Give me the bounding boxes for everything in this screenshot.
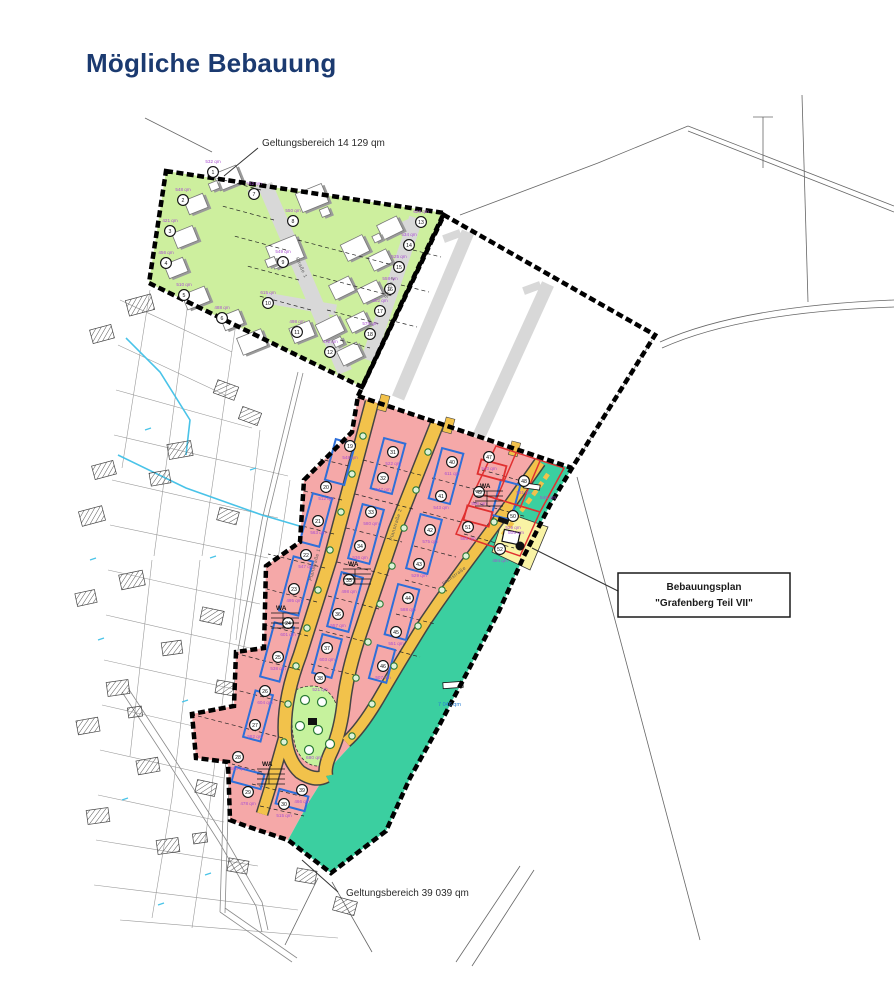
hatched-building	[156, 838, 180, 855]
hatched-building	[75, 590, 97, 607]
plot-area-label: 507 qm	[375, 675, 390, 680]
svg-text:19: 19	[347, 444, 353, 450]
plan-title-box: Bebauungsplan "Grafenberg Teil VII"	[532, 548, 790, 617]
playground-tree	[301, 696, 310, 705]
plot-area-label: 548 qm	[175, 187, 190, 192]
hatched-building	[78, 506, 105, 527]
plot-area-label: 551 qm	[388, 641, 403, 646]
hatched-building	[86, 808, 110, 825]
hatched-building	[333, 896, 358, 915]
svg-text:36: 36	[335, 612, 341, 618]
svg-text:8: 8	[292, 219, 295, 225]
bottom-area-label: Geltungsbereich 39 039 qm	[346, 888, 469, 899]
street-tree	[285, 701, 291, 707]
hatched-building	[125, 294, 154, 316]
street-tree	[415, 623, 421, 629]
stream	[126, 338, 190, 455]
svg-text:23: 23	[291, 587, 297, 593]
plot-area-label: 525 qm	[391, 254, 406, 259]
svg-text:2: 2	[182, 198, 185, 204]
plot-area-label: 582 qm	[247, 734, 262, 739]
plot-area-label: 548 qm	[342, 455, 357, 460]
street-tree	[425, 449, 431, 455]
plot-area-label: 472 qm	[322, 339, 337, 344]
svg-text:11: 11	[294, 330, 299, 336]
street-tree	[304, 625, 310, 631]
street-tree	[315, 587, 321, 593]
plot-area-label: 547 qm	[375, 487, 390, 492]
plot-area-label: 585 qm	[460, 536, 475, 541]
plot-area-label: 515 qm	[276, 813, 291, 818]
hatched-building	[200, 607, 224, 625]
plot-area-label: 566 qm	[471, 501, 486, 506]
plot-area-label: 495 qm	[286, 598, 301, 603]
plot-area-label: 604 qm	[257, 700, 272, 705]
plot-area-label: 456 qm	[158, 250, 173, 255]
hatched-building	[136, 757, 160, 775]
svg-text:21: 21	[315, 519, 321, 525]
plot-area-label: 529 qm	[411, 573, 426, 578]
hatched-building	[227, 858, 249, 874]
playground-symbol	[308, 718, 317, 725]
street-tree	[349, 733, 355, 739]
playground-tree	[296, 722, 305, 731]
plot-area-label: 498 qm	[289, 319, 304, 324]
plot-area-label: 603 qm	[319, 657, 334, 662]
hatched-building	[167, 441, 193, 460]
site-plan-map: 1532 qm2548 qm3421 qm4456 qm5510 qm6488 …	[0, 0, 894, 1000]
playground-tree	[314, 726, 323, 735]
svg-text:47: 47	[486, 455, 492, 461]
svg-text:26: 26	[262, 689, 268, 695]
street-tree	[349, 471, 355, 477]
svg-text:41: 41	[438, 494, 444, 500]
svg-text:34: 34	[357, 544, 363, 550]
plot-area-label: 588 qm	[400, 607, 415, 612]
svg-text:40: 40	[449, 460, 455, 466]
plot-area-label: 521 qm	[312, 687, 327, 692]
svg-text:6: 6	[221, 316, 224, 322]
plan-box-line2: "Grafenberg Teil VII"	[655, 598, 753, 609]
svg-text:15: 15	[396, 265, 402, 271]
svg-text:18: 18	[367, 332, 373, 338]
plot-area-label: 543 qm	[433, 505, 448, 510]
plot-area-label: 549 qm	[275, 249, 290, 254]
plot-area-label: 560 qm	[230, 766, 245, 771]
svg-text:WA: WA	[480, 483, 491, 490]
plot-area-label: 575 qm	[422, 539, 437, 544]
svg-text:39: 39	[299, 788, 305, 794]
svg-text:9: 9	[282, 260, 285, 266]
top-area-label: Geltungsbereich 14 129 qm	[262, 138, 385, 149]
hatched-building	[106, 680, 130, 697]
plot-area-label: 615 qm	[260, 290, 275, 295]
teal-plot-area-label: 548 qm	[540, 495, 556, 501]
annotation-top-area: Geltungsbereich 14 129 qm	[224, 138, 385, 176]
svg-text:5: 5	[183, 293, 186, 299]
plot-area-label: 536 qm	[352, 555, 367, 560]
street-tree	[413, 487, 419, 493]
street-tree	[439, 587, 445, 593]
street-tree	[327, 547, 333, 553]
street-tree	[338, 509, 344, 515]
plot-area-label: 611 qm	[445, 471, 460, 476]
svg-text:22: 22	[303, 553, 309, 559]
playground-tree	[318, 698, 327, 707]
svg-text:48: 48	[521, 479, 527, 485]
street-tree	[369, 701, 375, 707]
hatched-building	[192, 832, 207, 844]
svg-text:50: 50	[510, 514, 516, 520]
plot-area-label: 494 qm	[492, 558, 507, 563]
street-tree	[463, 553, 469, 559]
plot-area-label: 562 qm	[246, 181, 261, 186]
hatched-building	[92, 460, 117, 479]
street-tree	[365, 639, 371, 645]
plot-area-label: 498 qm	[341, 589, 356, 594]
svg-text:WA: WA	[262, 761, 273, 768]
plot-area-label: 601 qm	[280, 632, 295, 637]
plot-area-label: 421 qm	[162, 218, 177, 223]
plan-page: Mögliche Bebauung	[0, 0, 894, 1000]
street-tree	[401, 525, 407, 531]
hatched-building	[195, 780, 217, 797]
svg-text:31: 31	[390, 450, 396, 456]
svg-text:24: 24	[285, 621, 291, 627]
hatched-building	[238, 406, 261, 425]
plot-area-label: 522 qm	[385, 461, 400, 466]
plot-area-label: 580 qm	[363, 521, 378, 526]
stream	[118, 455, 330, 535]
plot-area-label: 540 qm	[481, 466, 496, 471]
svg-text:37: 37	[324, 646, 330, 652]
plot-area-label: 538 qm	[270, 666, 285, 671]
svg-text:25: 25	[275, 655, 281, 661]
plot-area-label: 534 qm	[401, 232, 416, 237]
hatched-building	[213, 380, 238, 401]
svg-text:WA: WA	[348, 561, 359, 568]
plot-area-label: 575 qm	[362, 321, 377, 326]
svg-text:27: 27	[252, 723, 258, 729]
svg-text:45: 45	[393, 630, 399, 636]
svg-text:3: 3	[169, 229, 172, 235]
svg-text:30: 30	[281, 802, 287, 808]
svg-text:52: 52	[497, 547, 503, 553]
svg-text:44: 44	[405, 596, 411, 602]
playground-area-label: 680 qm	[306, 755, 322, 761]
svg-text:42: 42	[427, 528, 433, 534]
street-tree	[491, 519, 497, 525]
plot-area-label: 466 qm	[294, 799, 309, 804]
svg-text:43: 43	[416, 562, 422, 568]
plot-area-label: 478 qm	[240, 801, 255, 806]
hatched-building	[127, 706, 142, 718]
svg-text:10: 10	[265, 301, 271, 307]
street-tree	[353, 675, 359, 681]
street-tree	[389, 563, 395, 569]
hatched-building	[76, 717, 100, 735]
hatched-building	[90, 324, 115, 343]
street-tree	[281, 739, 287, 745]
svg-text:38: 38	[317, 676, 323, 682]
plot-area-label: 529 qm	[505, 525, 520, 530]
plot-area-label: 628 qm	[413, 209, 428, 214]
svg-text:7: 7	[253, 192, 256, 198]
svg-text:32: 32	[380, 476, 386, 482]
green-space-area-label: 7 046 qm	[438, 702, 461, 708]
svg-text:1: 1	[212, 170, 215, 176]
svg-text:51: 51	[465, 525, 471, 531]
street-tree	[391, 663, 397, 669]
svg-text:46: 46	[380, 664, 386, 670]
svg-text:29: 29	[245, 790, 251, 796]
street-tree	[377, 601, 383, 607]
hatched-building	[217, 507, 240, 525]
street-tree	[293, 663, 299, 669]
street-tree	[360, 433, 366, 439]
plot-area-label: 531 qm	[516, 490, 531, 495]
svg-text:14: 14	[406, 243, 412, 249]
svg-text:33: 33	[368, 510, 374, 516]
plot-area-label: 563 qm	[310, 530, 325, 535]
utility-area-label: 505 qm	[508, 530, 524, 536]
plot-area-label: 550 qm	[285, 208, 300, 213]
plot-area-label: 488 qm	[214, 305, 229, 310]
plot-area-label: 532 qm	[205, 159, 220, 164]
svg-text:12: 12	[327, 350, 333, 356]
svg-text:17: 17	[377, 309, 383, 315]
hatched-building	[161, 640, 183, 656]
playground-tree	[305, 746, 314, 755]
plot-area-label: 510 qm	[176, 282, 191, 287]
plot-area-label: 512 qm	[318, 496, 333, 501]
svg-text:WA: WA	[276, 605, 287, 612]
plot-area-label: 557 qm	[330, 623, 345, 628]
svg-text:28: 28	[235, 755, 241, 761]
playground-tree	[326, 740, 335, 749]
svg-text:13: 13	[418, 220, 424, 226]
svg-text:4: 4	[165, 261, 168, 267]
svg-text:20: 20	[323, 485, 329, 491]
plan-box-line1: Bebauungsplan	[666, 582, 741, 593]
